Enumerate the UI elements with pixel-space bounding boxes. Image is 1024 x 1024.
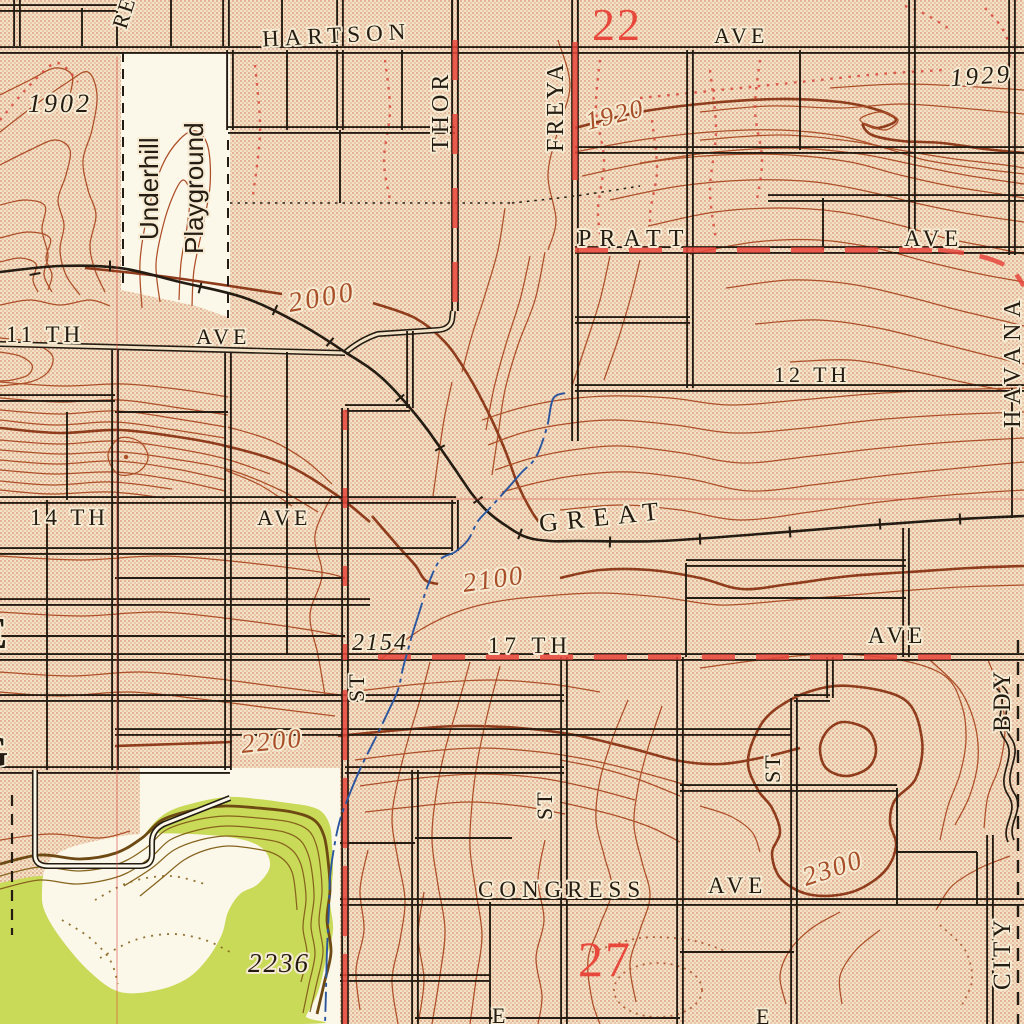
svg-text:AVE: AVE bbox=[714, 23, 768, 48]
svg-text:AVE: AVE bbox=[257, 505, 311, 530]
svg-text:2154: 2154 bbox=[352, 630, 408, 656]
svg-text:1902: 1902 bbox=[28, 89, 92, 118]
svg-text:14 TH: 14 TH bbox=[30, 505, 109, 530]
svg-text:THOR: THOR bbox=[428, 71, 454, 152]
svg-text:27: 27 bbox=[578, 931, 632, 987]
svg-text:ST: ST bbox=[344, 672, 369, 702]
svg-text:AVE: AVE bbox=[904, 226, 963, 251]
svg-text:FREYA: FREYA bbox=[543, 61, 569, 152]
svg-text:22: 22 bbox=[592, 0, 642, 50]
svg-text:ST: ST bbox=[532, 790, 557, 820]
svg-text:1929: 1929 bbox=[949, 61, 1013, 92]
svg-text:ST: ST bbox=[760, 753, 785, 783]
svg-text:2236: 2236 bbox=[248, 948, 310, 978]
svg-text:E: E bbox=[756, 1004, 769, 1024]
svg-text:CITY: CITY bbox=[989, 916, 1016, 990]
svg-text:E: E bbox=[0, 609, 7, 658]
svg-text:AVE: AVE bbox=[708, 873, 767, 898]
svg-text:BDY: BDY bbox=[989, 667, 1016, 732]
svg-text:AVE: AVE bbox=[868, 623, 927, 648]
svg-text:11 TH: 11 TH bbox=[6, 322, 84, 347]
svg-text:17 TH: 17 TH bbox=[488, 633, 572, 658]
svg-text:E: E bbox=[492, 1003, 505, 1024]
svg-text:PRATT: PRATT bbox=[578, 226, 691, 252]
svg-text:CONGRESS: CONGRESS bbox=[478, 877, 646, 902]
svg-text:Playground: Playground bbox=[179, 122, 209, 254]
svg-text:HAVANA: HAVANA bbox=[1000, 294, 1024, 428]
svg-text:AVE: AVE bbox=[196, 324, 250, 349]
svg-text:Underhill: Underhill bbox=[134, 137, 164, 240]
svg-text:12 TH: 12 TH bbox=[774, 362, 850, 387]
svg-text:G: G bbox=[0, 727, 8, 776]
